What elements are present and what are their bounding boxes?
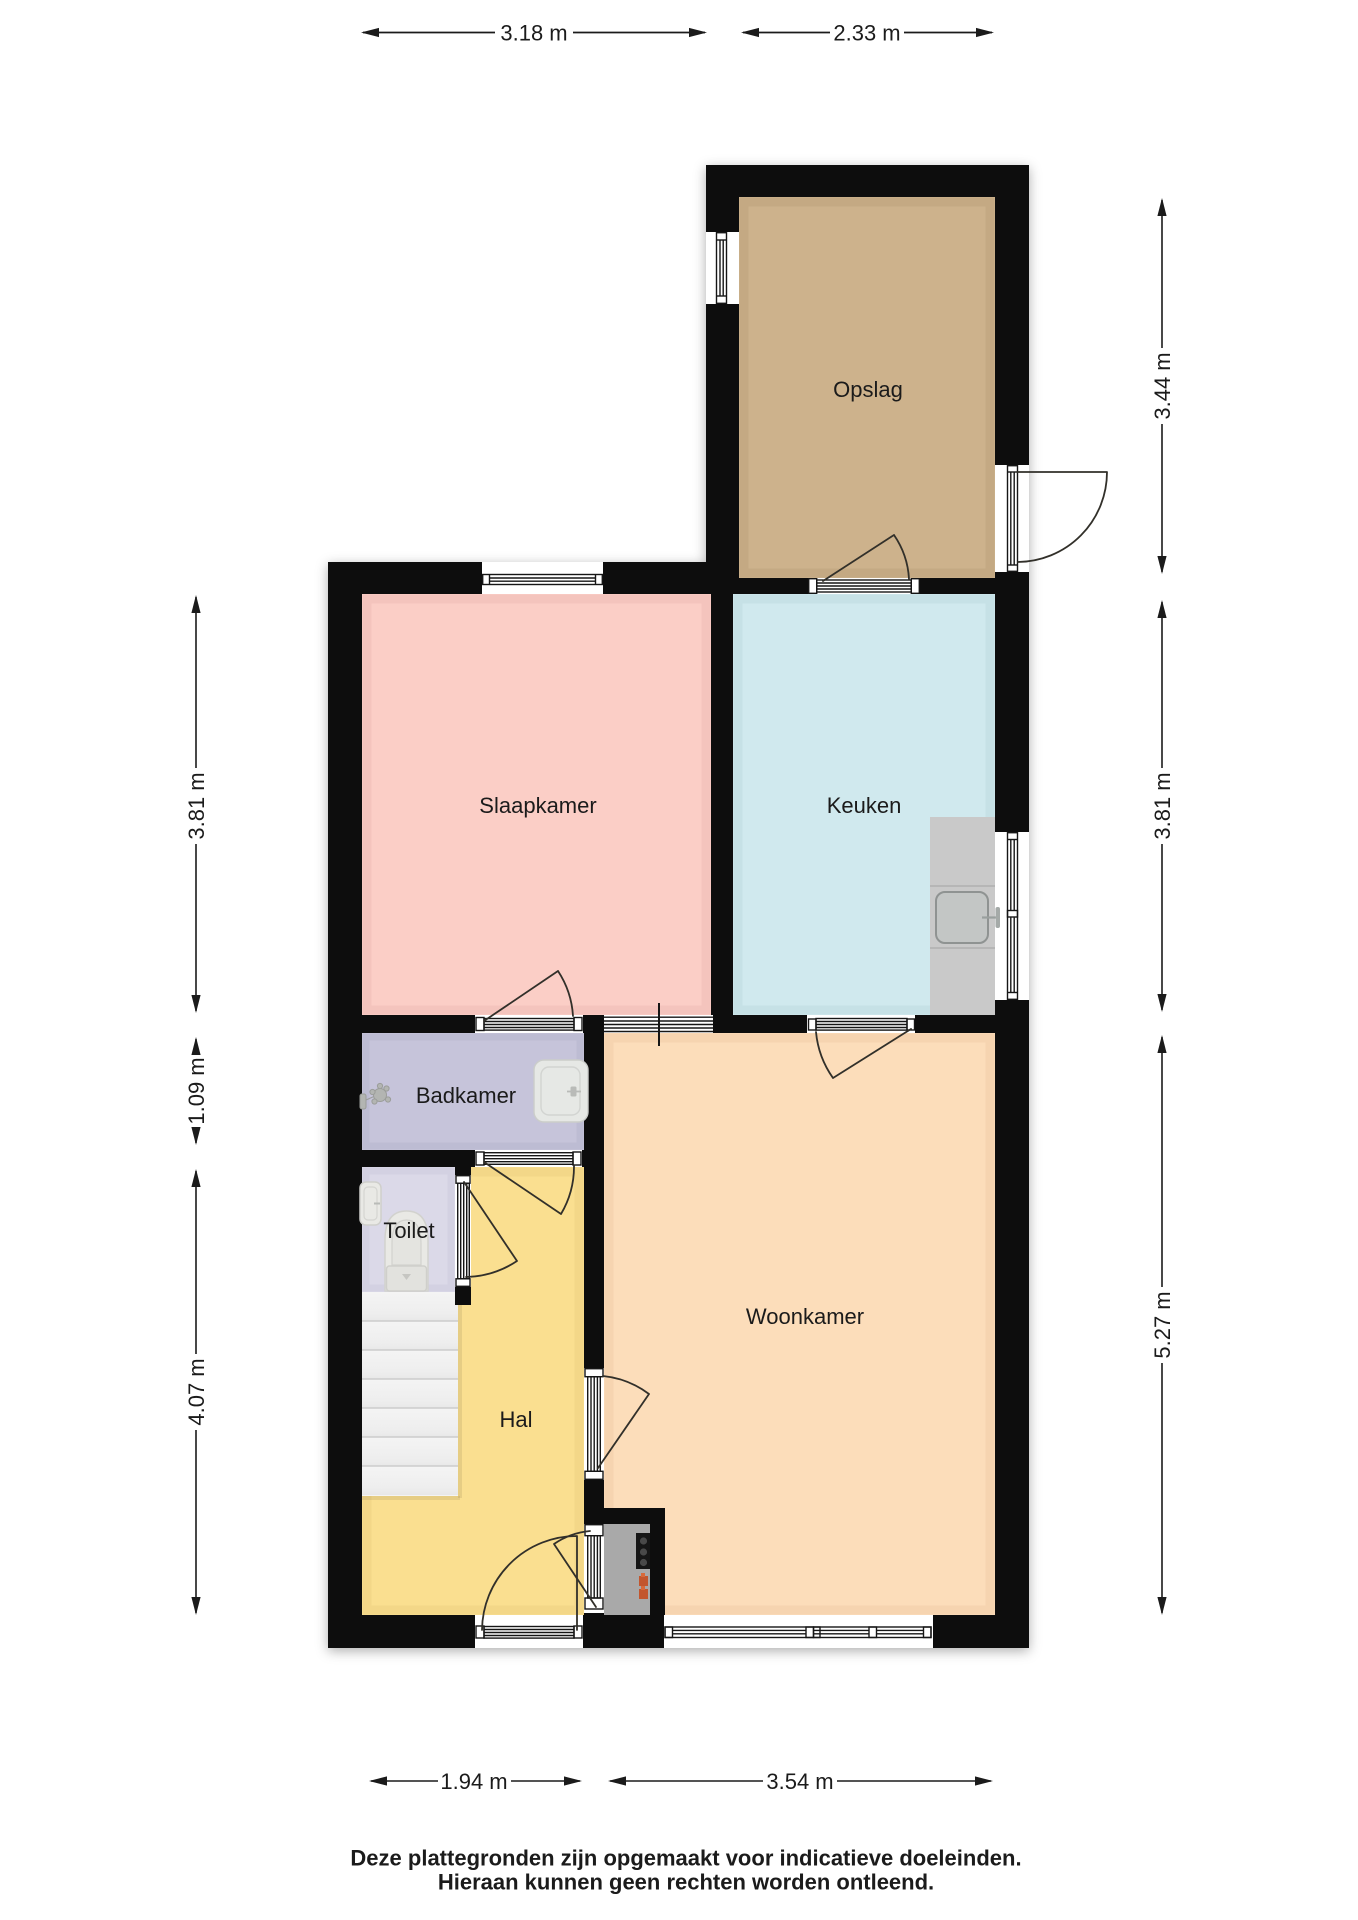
svg-text:Woonkamer: Woonkamer [746, 1304, 864, 1329]
svg-text:3.18 m: 3.18 m [500, 21, 567, 46]
svg-text:3.81 m: 3.81 m [184, 772, 209, 839]
svg-text:Badkamer: Badkamer [416, 1083, 516, 1108]
svg-text:3.44 m: 3.44 m [1150, 352, 1175, 419]
svg-text:Keuken: Keuken [827, 793, 902, 818]
svg-text:3.81 m: 3.81 m [1150, 772, 1175, 839]
svg-text:Opslag: Opslag [833, 377, 903, 402]
svg-text:2.33 m: 2.33 m [833, 21, 900, 46]
svg-text:Hieraan kunnen geen rechten wo: Hieraan kunnen geen rechten worden ontle… [438, 1870, 934, 1895]
svg-text:5.27 m: 5.27 m [1150, 1291, 1175, 1358]
svg-text:1.09 m: 1.09 m [184, 1057, 209, 1124]
svg-text:Slaapkamer: Slaapkamer [479, 793, 596, 818]
svg-text:Deze plattegronden zijn opgema: Deze plattegronden zijn opgemaakt voor i… [350, 1846, 1021, 1871]
svg-text:3.54 m: 3.54 m [766, 1769, 833, 1794]
svg-text:Hal: Hal [499, 1407, 532, 1432]
svg-text:1.94 m: 1.94 m [440, 1769, 507, 1794]
svg-text:4.07 m: 4.07 m [184, 1358, 209, 1425]
svg-text:Toilet: Toilet [383, 1218, 434, 1243]
